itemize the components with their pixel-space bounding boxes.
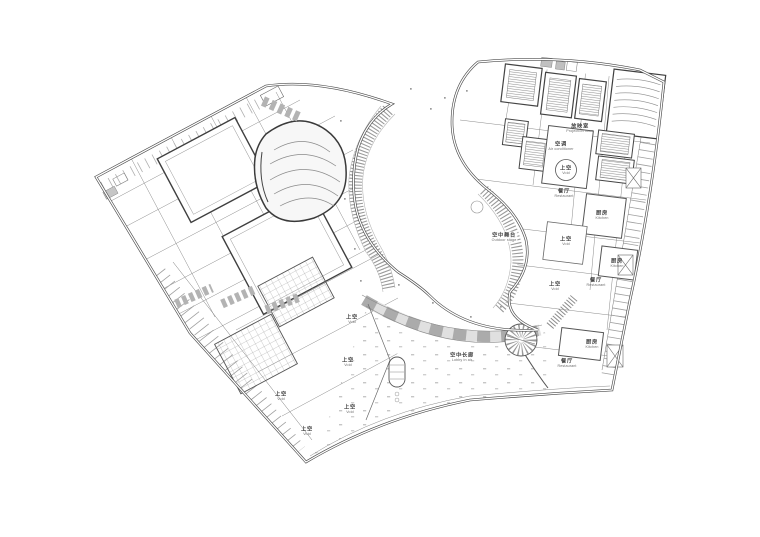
void-circle-shape (556, 160, 577, 181)
west-auditorium (254, 121, 346, 221)
tree-circle-east (471, 201, 483, 213)
west-service-box (100, 173, 132, 199)
great-hall-1 (157, 118, 269, 223)
cinema-1 (501, 64, 542, 106)
cinema-3 (575, 79, 607, 122)
skylight-void-2 (215, 314, 298, 393)
column-dots (336, 88, 502, 318)
kitchen-3-room (558, 328, 603, 361)
void-2-room (543, 222, 587, 265)
outdoor-stage-steps (484, 190, 518, 310)
ramp-stair (355, 110, 389, 290)
kitchen-1-room (582, 194, 627, 239)
floor-plan-drawing (0, 0, 760, 537)
east-escalator (550, 298, 574, 326)
cinema-2 (541, 72, 577, 117)
floor-plan-canvas: 放映室Projection room 空调Air conditioner 上空V… (0, 0, 760, 537)
cinema-6a (596, 130, 635, 158)
